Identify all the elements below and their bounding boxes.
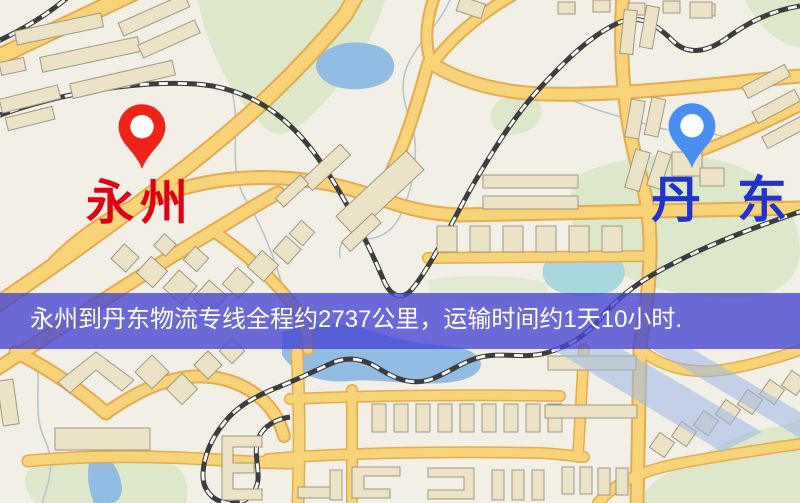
map-canvas[interactable]: 永州到丹东物流专线全程约2737公里，运输时间约1天10小时. 永州 丹东 <box>0 0 800 503</box>
map-screenshot: 永州到丹东物流专线全程约2737公里，运输时间约1天10小时. 永州 丹东 <box>0 0 800 503</box>
info-banner-text: 永州到丹东物流专线全程约2737公里，运输时间约1天10小时. <box>30 306 682 333</box>
destination-city-label: 丹东 <box>651 172 800 228</box>
destination-pin-hole <box>680 114 703 137</box>
origin-pin-hole <box>130 115 153 138</box>
origin-city-label: 永州 <box>86 177 194 230</box>
info-banner: 永州到丹东物流专线全程约2737公里，运输时间约1天10小时. <box>0 293 800 349</box>
